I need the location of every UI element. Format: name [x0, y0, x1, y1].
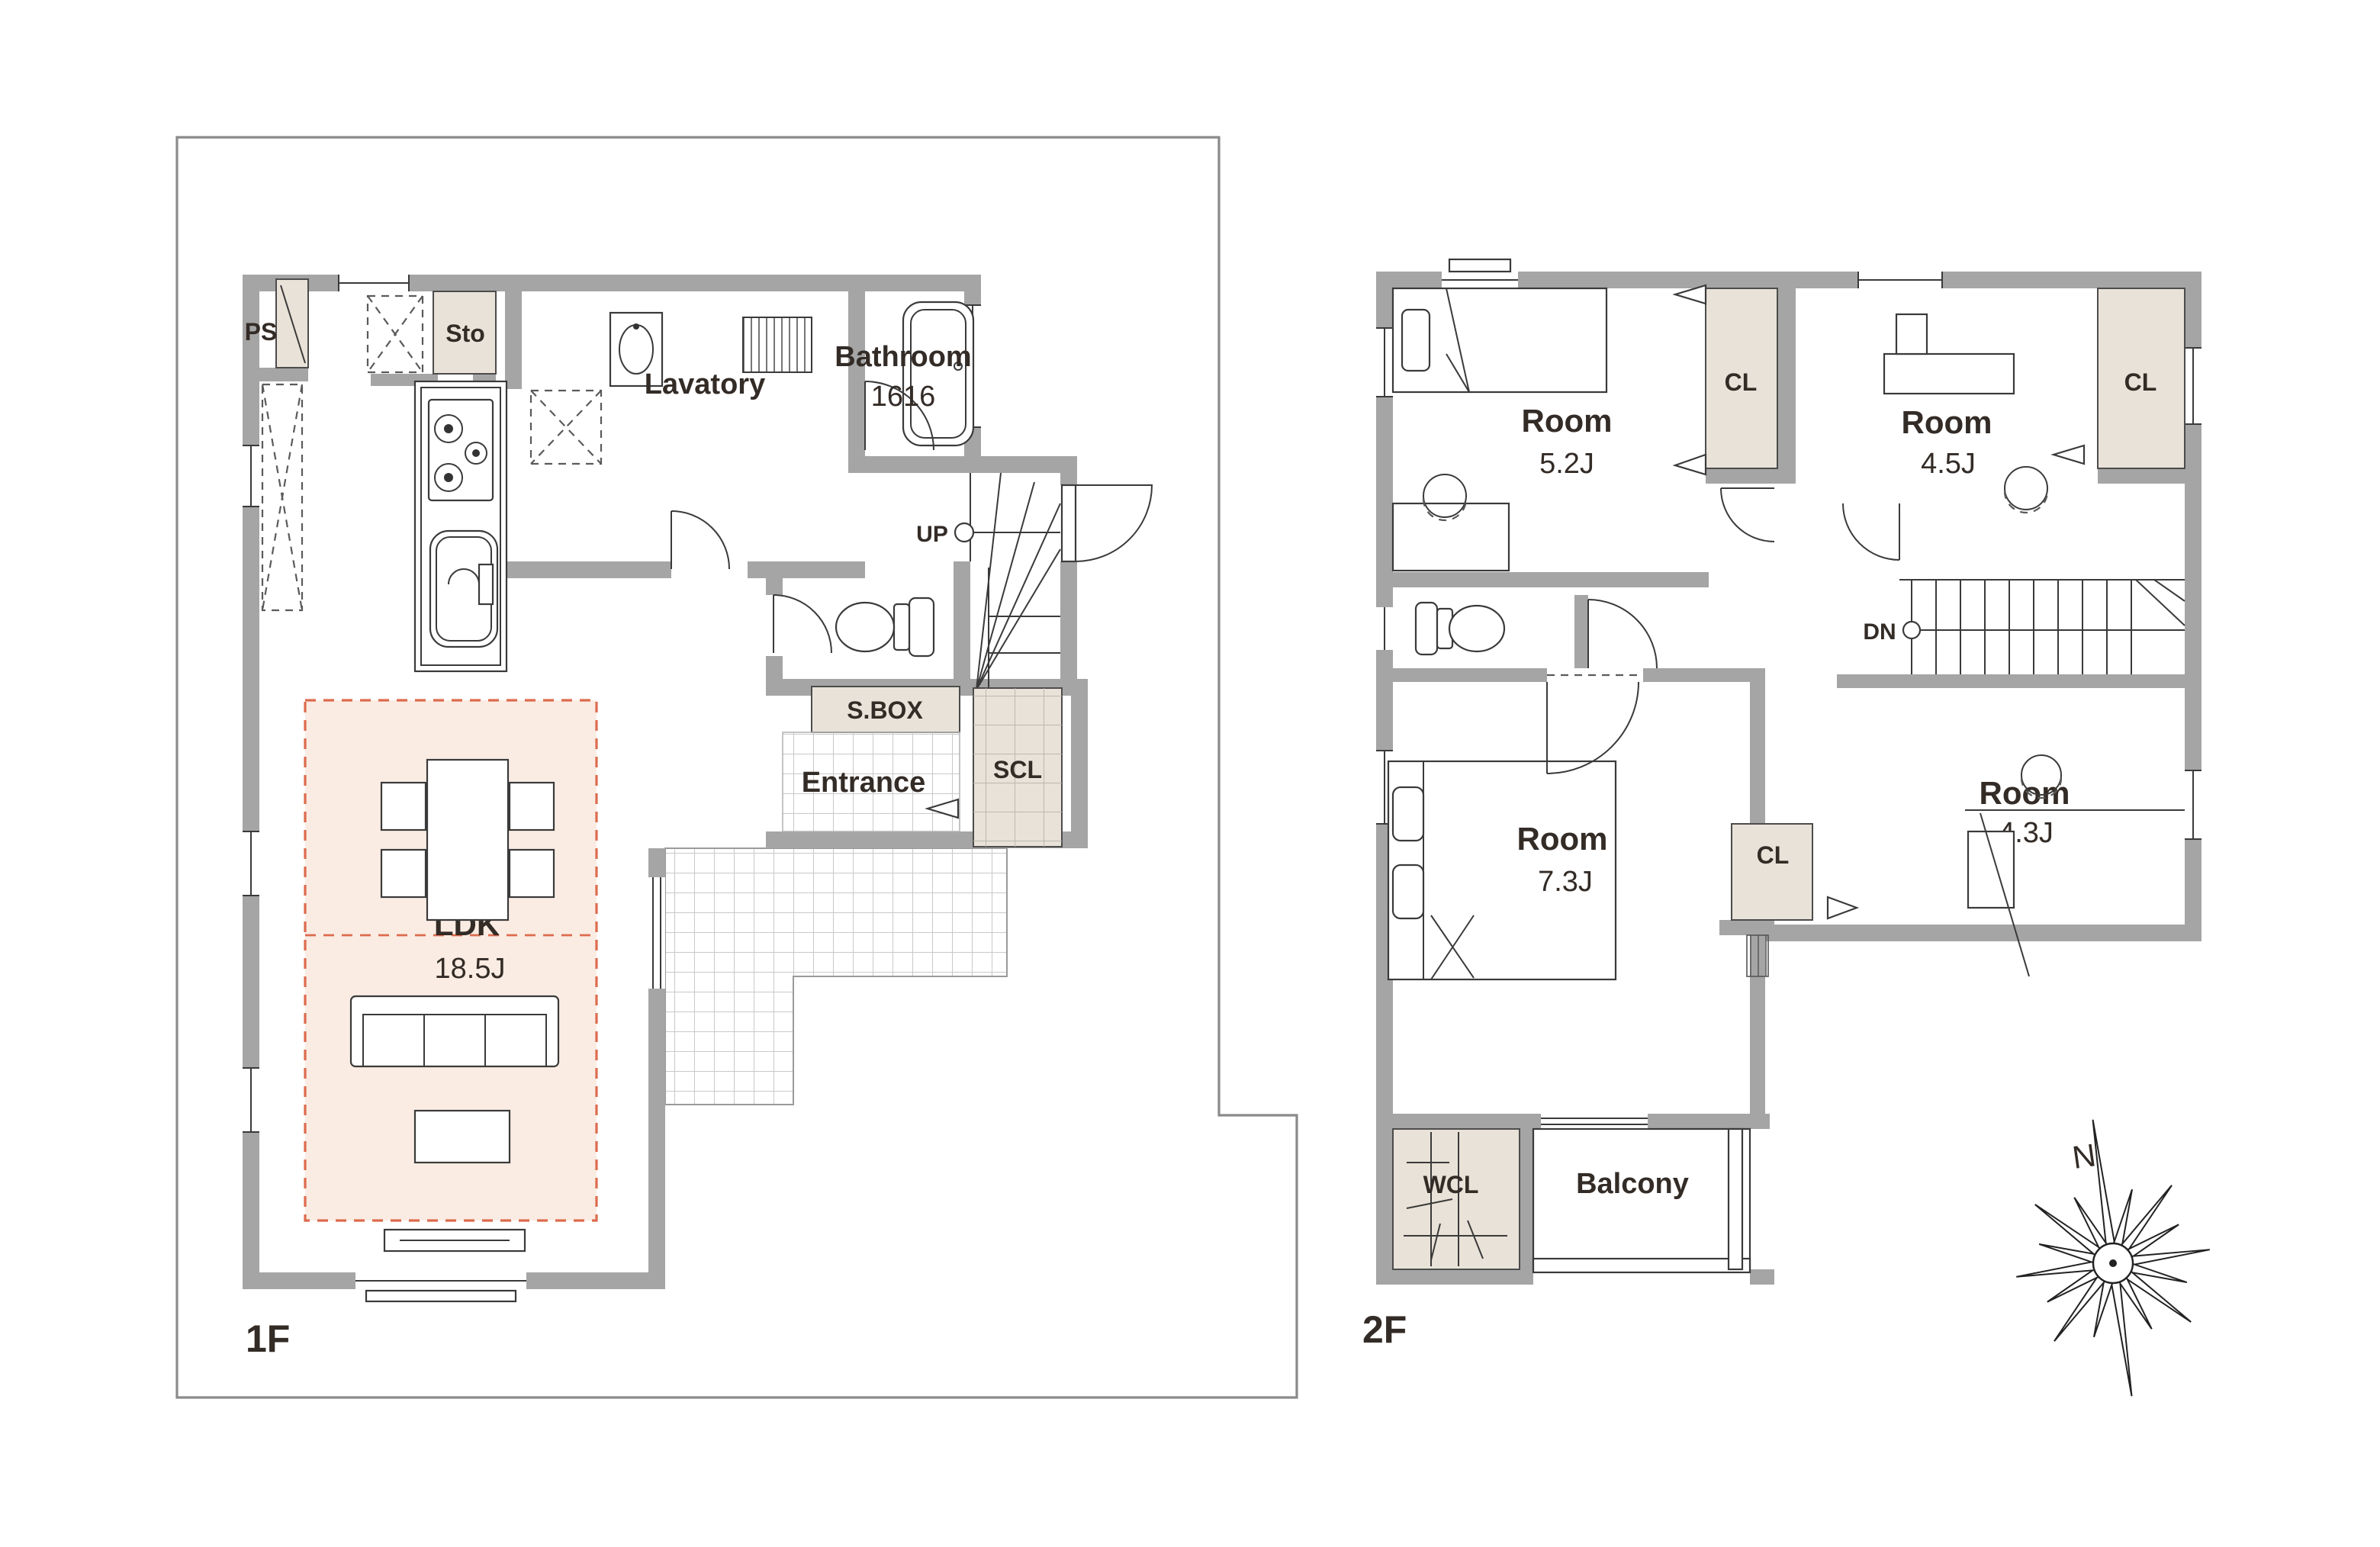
stairwell-window [1747, 935, 1768, 976]
cl1-door-arrow-bottom [1675, 455, 1706, 474]
stove-icon [429, 400, 493, 500]
bathtub-icon [903, 302, 973, 445]
shoe-box-label: S.BOX [847, 696, 923, 724]
sto-label: Sto [445, 320, 485, 347]
cl3-door-arrow [1828, 897, 1857, 918]
bathroom-label: Bathroom [835, 341, 971, 373]
dn-label: DN [1863, 619, 1896, 645]
bed-icon-single [1393, 288, 1606, 392]
sofa-icon [351, 996, 558, 1066]
room4-label: Room [1980, 775, 2070, 811]
floorplan-drawing: UP PS Sto [0, 0, 2380, 1547]
desk-icon-room1 [1393, 474, 1509, 571]
stairs-2f [1899, 580, 2185, 674]
room3-opening [1547, 668, 1643, 773]
pantry-space [262, 384, 302, 610]
up-label: UP [916, 522, 948, 547]
room2-door-icon [1843, 503, 1899, 560]
entrance-label: Entrance [802, 767, 926, 799]
scl-label: SCL [993, 756, 1042, 783]
floor1-label: 1F [246, 1317, 290, 1360]
washing-machine-space [531, 391, 601, 464]
room2-label: Room [1902, 404, 1992, 440]
entrance-door-icon [1059, 485, 1152, 561]
room1-label: Room [1522, 403, 1613, 439]
toilet-door-icon-2f [1588, 600, 1657, 668]
room1-size-label: 5.2J [1539, 448, 1594, 480]
coffee-table-icon [415, 1111, 510, 1163]
room3-size-label: 7.3J [1538, 866, 1593, 898]
compass-center [2093, 1243, 2133, 1283]
toilet-icon-2f [1416, 603, 1504, 654]
closet-cl3 [1732, 824, 1812, 920]
room1-door-icon [1721, 488, 1774, 542]
stairs-1f [955, 473, 1060, 690]
cl1-label: CL [1725, 368, 1758, 396]
cl3-label: CL [1757, 841, 1790, 869]
ps-duct [276, 279, 308, 368]
kitchen-sink-icon [430, 531, 497, 647]
porch-tiles [665, 848, 1007, 1105]
ldk-size-label: 18.5J [435, 953, 506, 985]
refrigerator-space [368, 296, 423, 372]
toilet-door-icon-1f [773, 595, 831, 653]
ldk-opening [648, 877, 665, 989]
wcl-label: WCL [1423, 1171, 1479, 1198]
floor2-plan: Room 5.2J CL Room 4.5J CL [1362, 259, 2203, 1351]
lavatory-label: Lavatory [645, 368, 765, 400]
room2-size-label: 4.5J [1921, 448, 1976, 480]
lavatory-shelf [743, 317, 812, 372]
floorplan-page: UP PS Sto [0, 0, 2380, 1547]
balcony [1533, 1129, 1750, 1272]
toilet-icon-1f [836, 598, 934, 656]
ps-label: PS [245, 318, 278, 346]
lavatory-door-icon [671, 511, 729, 569]
cl2-door-arrow [2054, 445, 2084, 464]
floor1-plan: UP PS Sto [177, 137, 1297, 1397]
room3-label: Room [1517, 821, 1608, 857]
bathroom-size-label: 1616 [871, 381, 936, 413]
tv-board-icon [384, 1230, 525, 1251]
compass-north-label: N [2070, 1137, 2099, 1176]
floor2-label: 2F [1362, 1308, 1407, 1351]
balcony-label: Balcony [1576, 1168, 1689, 1200]
walkin-closet [1393, 1129, 1520, 1269]
cl2-label: CL [2124, 368, 2157, 396]
